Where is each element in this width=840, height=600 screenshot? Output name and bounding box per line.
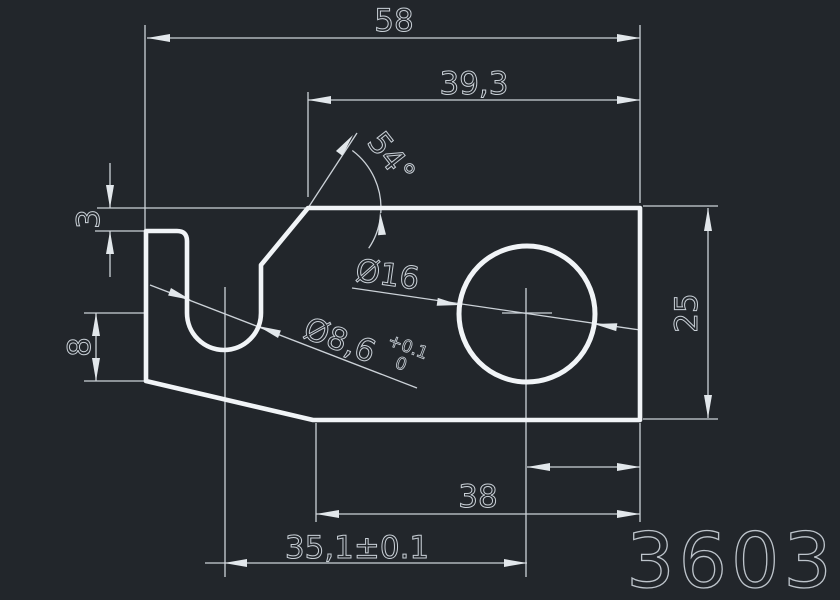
dim-slot-diameter-label: Ø8,6 (299, 311, 381, 371)
dim-hole-diameter-label: Ø16 (353, 253, 421, 298)
dim-upper-width-label: 39,3 (439, 66, 508, 102)
dim-slot-to-hole-label: 35,1±0.1 (285, 530, 429, 566)
dimension-texts: 58 39,3 54° 3 8 Ø16 Ø8,6 +0.1 0 25 38 35… (62, 3, 705, 566)
dim-bevel-angle-label: 54° (360, 125, 422, 190)
dim-part-height-label: 25 (669, 293, 705, 332)
dim-bottom-width-label: 38 (458, 479, 497, 515)
dim-lip-thickness-label: 3 (71, 209, 107, 229)
dim-total-width-label: 58 (374, 3, 413, 39)
dim-hook-depth-label: 8 (62, 337, 98, 357)
part-outline (146, 208, 640, 420)
part-geometry (146, 208, 640, 420)
drawing-number: 3603 (626, 516, 835, 600)
cad-drawing: 58 39,3 54° 3 8 Ø16 Ø8,6 +0.1 0 25 38 35… (0, 0, 840, 600)
dim-slot-tolerance-lower: 0 (392, 353, 409, 376)
cad-drawing-viewport: 58 39,3 54° 3 8 Ø16 Ø8,6 +0.1 0 25 38 35… (0, 0, 840, 600)
